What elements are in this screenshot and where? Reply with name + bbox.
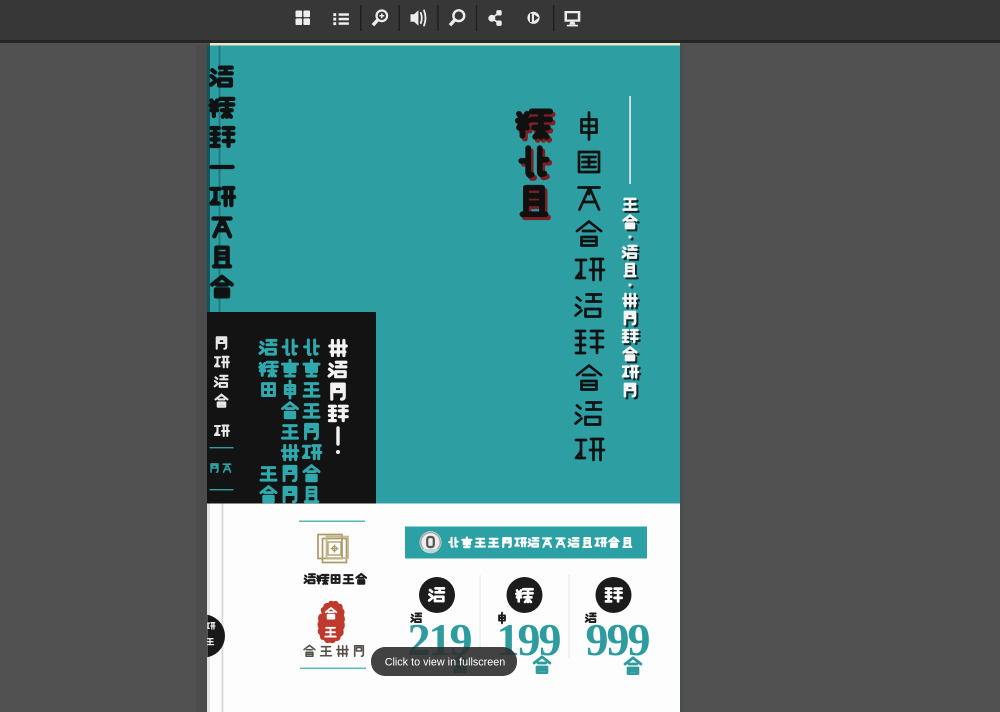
- svg-text:999: 999: [586, 614, 650, 665]
- svg-text:Click to view in fullscreen: Click to view in fullscreen: [385, 657, 506, 669]
